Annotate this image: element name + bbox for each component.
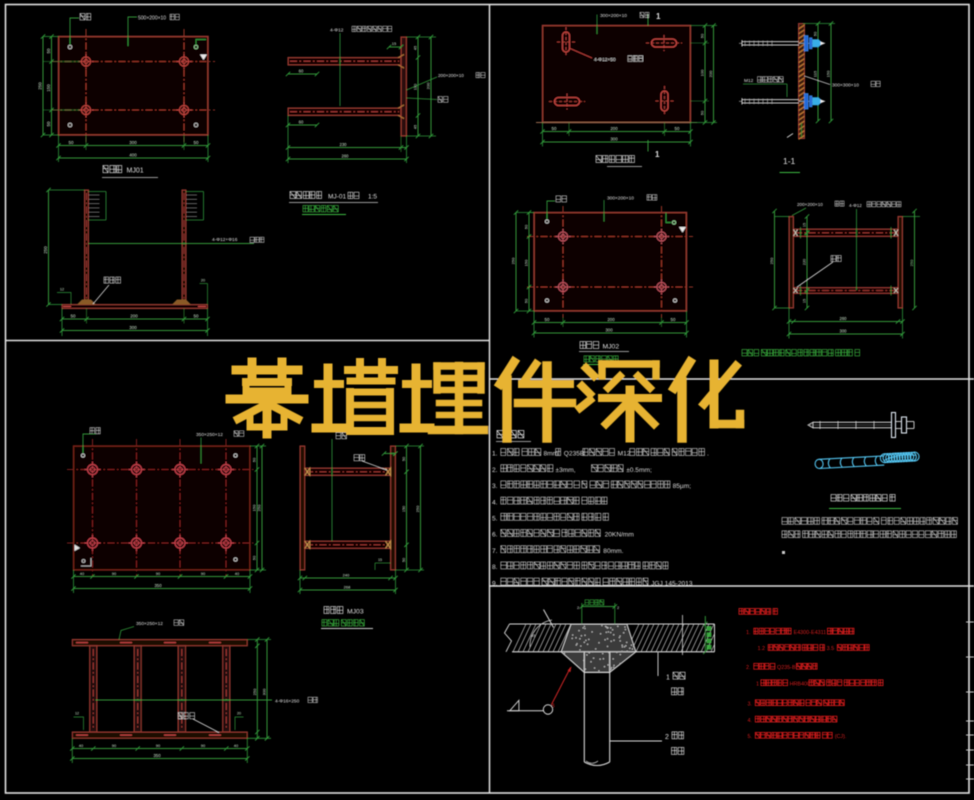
svg-text:MJ02: MJ02 <box>603 344 620 351</box>
svg-text:268: 268 <box>344 585 351 590</box>
svg-text:50: 50 <box>545 317 550 322</box>
svg-text:250: 250 <box>909 259 914 266</box>
svg-text:MJ-01: MJ-01 <box>328 194 346 201</box>
svg-text:350: 350 <box>154 583 162 588</box>
svg-text:115: 115 <box>813 70 818 77</box>
svg-text:50: 50 <box>552 126 557 131</box>
svg-text:7.: 7. <box>492 548 498 555</box>
svg-text:40: 40 <box>79 743 84 748</box>
svg-text:1-1: 1-1 <box>783 156 796 166</box>
svg-text:240: 240 <box>343 573 350 578</box>
svg-text:3.: 3. <box>492 483 498 490</box>
svg-text:90: 90 <box>112 571 117 576</box>
svg-text:45: 45 <box>413 45 418 50</box>
svg-text:90: 90 <box>112 743 117 748</box>
svg-text:1: 1 <box>655 150 660 159</box>
svg-text:4-Φ12+Φ16: 4-Φ12+Φ16 <box>212 237 238 243</box>
svg-text:90: 90 <box>156 571 161 576</box>
svg-text:45: 45 <box>531 633 536 638</box>
svg-text:350×250×12: 350×250×12 <box>136 621 163 627</box>
svg-text:MJ01: MJ01 <box>127 168 144 175</box>
svg-text:50: 50 <box>252 555 257 560</box>
svg-text:150: 150 <box>402 506 406 512</box>
svg-text:2.: 2. <box>746 665 751 671</box>
svg-text:1.2: 1.2 <box>758 646 766 652</box>
svg-text:250: 250 <box>257 504 262 511</box>
svg-text:1.: 1. <box>492 451 498 458</box>
svg-text:300: 300 <box>605 328 613 333</box>
svg-text:350×250×12: 350×250×12 <box>196 432 223 438</box>
svg-text:200×200×10: 200×200×10 <box>438 73 464 78</box>
svg-text:1: 1 <box>666 675 670 682</box>
svg-text:80mm.: 80mm. <box>603 548 623 555</box>
svg-text:3.5: 3.5 <box>827 646 835 652</box>
svg-text:20: 20 <box>201 279 205 283</box>
svg-text:300×300×10: 300×300×10 <box>832 83 859 89</box>
svg-text:90: 90 <box>156 743 161 748</box>
svg-text:220: 220 <box>803 259 807 265</box>
svg-text:60: 60 <box>299 120 304 125</box>
svg-text:12: 12 <box>75 712 79 716</box>
svg-text:45: 45 <box>413 124 418 129</box>
svg-text:9.: 9. <box>492 580 498 587</box>
svg-text:40: 40 <box>234 743 239 748</box>
svg-text:250: 250 <box>38 82 43 90</box>
svg-text:260: 260 <box>840 316 848 321</box>
svg-text:50: 50 <box>46 121 51 127</box>
svg-text:4.: 4. <box>492 499 498 506</box>
svg-text:±3mm,: ±3mm, <box>556 467 576 474</box>
svg-text:M12: M12 <box>618 451 631 458</box>
svg-text:85µm;: 85µm; <box>673 483 692 490</box>
svg-text:20: 20 <box>237 712 241 716</box>
svg-text:100: 100 <box>700 69 705 76</box>
svg-text:250: 250 <box>511 257 516 264</box>
svg-text:4-Φ12×50: 4-Φ12×50 <box>594 57 616 63</box>
svg-text:1: 1 <box>656 12 661 21</box>
svg-text:MJ03: MJ03 <box>347 609 364 616</box>
svg-text:15: 15 <box>803 223 807 227</box>
svg-text:6.: 6. <box>492 532 498 539</box>
svg-text:90: 90 <box>201 571 206 576</box>
svg-text:40: 40 <box>80 571 85 576</box>
svg-text:50: 50 <box>68 140 74 145</box>
svg-text:50: 50 <box>813 31 818 36</box>
svg-text:15: 15 <box>392 41 397 46</box>
svg-text:50: 50 <box>193 314 199 319</box>
svg-text:300×200×10: 300×200×10 <box>600 13 627 19</box>
svg-text:200: 200 <box>610 126 618 131</box>
svg-text:5.: 5. <box>492 516 498 523</box>
svg-text:200: 200 <box>708 70 713 77</box>
svg-text:230: 230 <box>340 142 348 147</box>
svg-text:60: 60 <box>299 69 304 74</box>
svg-text:300: 300 <box>610 137 618 142</box>
svg-text:E4300-E4311: E4300-E4311 <box>794 630 827 636</box>
svg-text:(CJ).: (CJ). <box>835 734 847 740</box>
svg-text:1.: 1. <box>746 630 751 636</box>
svg-text:4.: 4. <box>748 718 753 724</box>
svg-text:JGJ 145-2013: JGJ 145-2013 <box>651 580 693 587</box>
svg-text:4-Φ12: 4-Φ12 <box>330 28 344 34</box>
svg-text:90: 90 <box>201 743 206 748</box>
svg-text:50: 50 <box>700 110 705 115</box>
svg-text:.: . <box>707 451 709 458</box>
svg-text:150: 150 <box>524 259 529 266</box>
svg-text:Q235-B: Q235-B <box>777 665 796 671</box>
svg-text:50: 50 <box>252 457 257 462</box>
svg-text:250: 250 <box>769 257 774 264</box>
svg-text:350: 350 <box>153 753 161 758</box>
svg-text:20KN/mm: 20KN/mm <box>605 532 635 539</box>
svg-text:300×200×10: 300×200×10 <box>607 196 634 202</box>
svg-text:Q235B: Q235B <box>564 451 585 458</box>
svg-text:2: 2 <box>665 734 669 741</box>
svg-text:300: 300 <box>262 688 267 695</box>
svg-text:250: 250 <box>252 688 257 695</box>
svg-text:±0.5mm;: ±0.5mm; <box>626 467 652 474</box>
svg-text:200: 200 <box>130 314 138 319</box>
svg-text:300: 300 <box>129 140 137 145</box>
svg-text:1:5: 1:5 <box>368 194 377 201</box>
svg-text:50: 50 <box>524 298 529 303</box>
svg-text:50: 50 <box>402 558 406 562</box>
svg-text:300: 300 <box>840 329 848 334</box>
svg-text:50: 50 <box>193 140 199 145</box>
svg-text:3.: 3. <box>748 701 753 707</box>
svg-text:M12: M12 <box>744 78 754 84</box>
svg-text:2.: 2. <box>492 467 498 474</box>
svg-text:50: 50 <box>671 317 676 322</box>
svg-text:250: 250 <box>415 505 420 512</box>
svg-text:150: 150 <box>826 70 831 77</box>
svg-text:200: 200 <box>607 317 615 322</box>
svg-text:400: 400 <box>129 153 137 158</box>
svg-text:8.: 8. <box>492 564 498 571</box>
svg-text:150: 150 <box>46 84 51 92</box>
svg-text:200: 200 <box>426 82 431 89</box>
svg-text:50: 50 <box>700 33 705 38</box>
svg-text:1: 1 <box>756 681 759 687</box>
svg-text:50: 50 <box>70 314 76 319</box>
svg-text:15: 15 <box>378 558 382 562</box>
svg-text:200×200×10: 200×200×10 <box>797 202 823 207</box>
svg-text:5.: 5. <box>748 734 753 740</box>
svg-text:15: 15 <box>803 299 807 303</box>
svg-text:300: 300 <box>129 325 137 330</box>
svg-text:12: 12 <box>60 288 64 292</box>
svg-text:260: 260 <box>342 154 350 159</box>
svg-text:500×200×10: 500×200×10 <box>138 16 166 22</box>
svg-text:40: 40 <box>235 571 240 576</box>
svg-text:50: 50 <box>402 457 406 461</box>
svg-text:50: 50 <box>675 126 680 131</box>
svg-text:250: 250 <box>43 246 48 254</box>
svg-text:50: 50 <box>524 224 529 229</box>
svg-text:HRB400: HRB400 <box>790 681 810 687</box>
svg-text:4-Φ16×250: 4-Φ16×250 <box>275 699 300 705</box>
svg-text:4-Φ12: 4-Φ12 <box>849 203 862 208</box>
svg-text:50: 50 <box>46 48 51 54</box>
